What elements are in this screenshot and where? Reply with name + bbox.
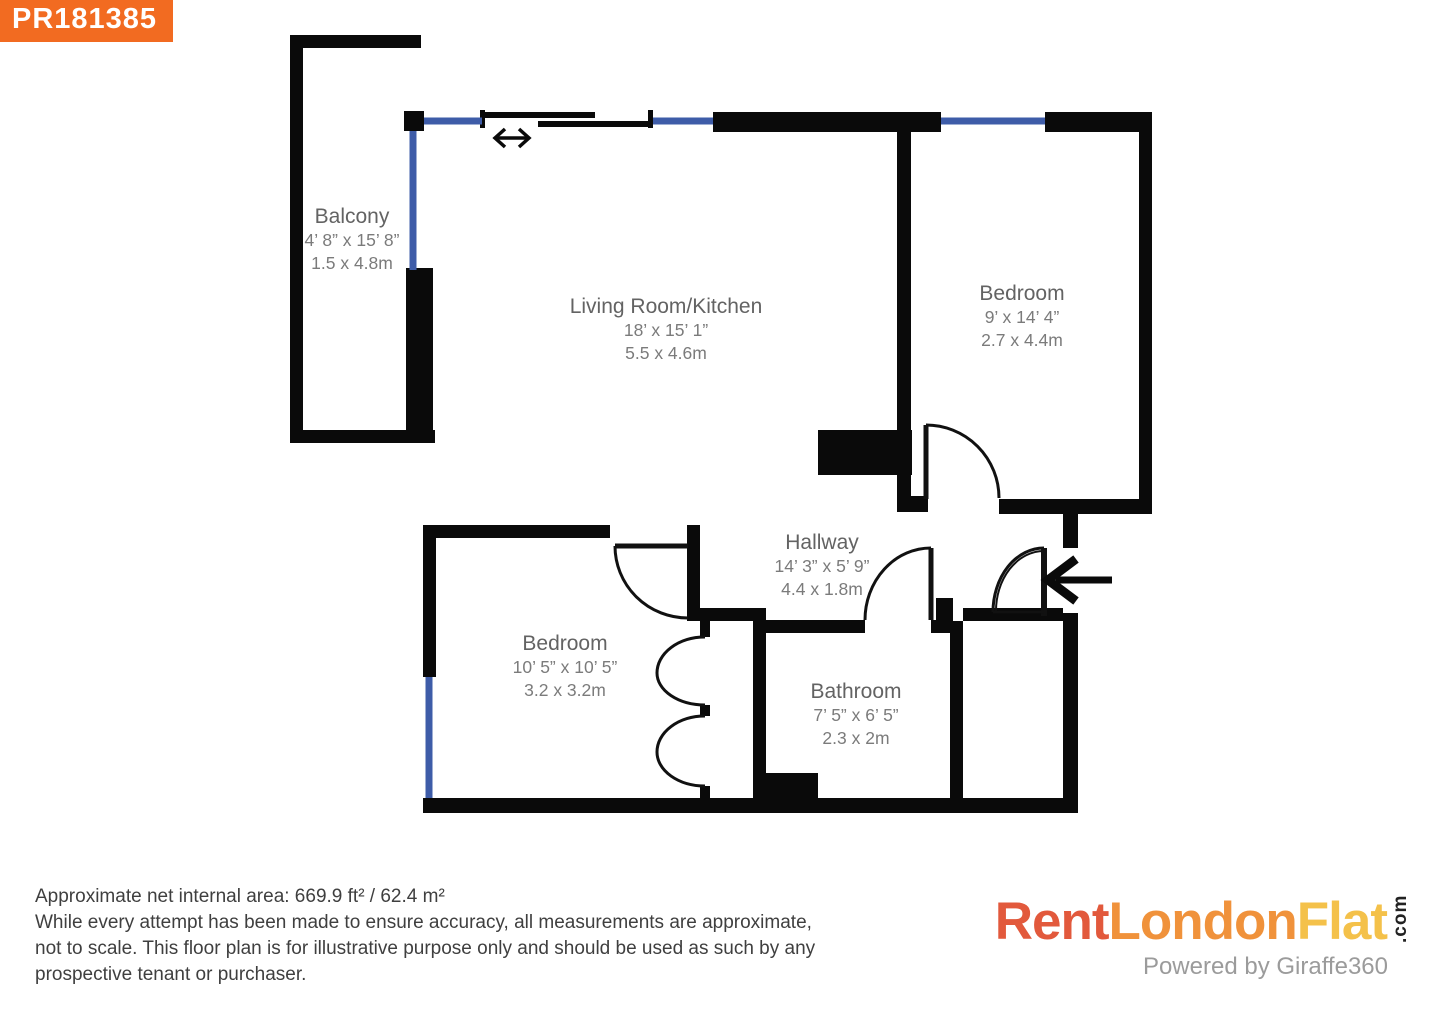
room-label-bathroom: Bathroom 7’ 5” x 6’ 5” 2.3 x 2m: [810, 679, 901, 750]
room-name: Balcony: [305, 204, 400, 229]
logo-word-london: London: [1109, 893, 1297, 951]
brand-logo-wordmark: Rent London Flat .com: [995, 893, 1412, 951]
room-dimensions-metric: 4.4 x 1.8m: [775, 578, 870, 601]
disclaimer-line: not to scale. This floor plan is for ill…: [35, 936, 815, 962]
room-name: Living Room/Kitchen: [570, 294, 763, 319]
entry-arrow-icon: [1048, 559, 1112, 601]
powered-by-text: Powered by Giraffe360: [995, 953, 1412, 981]
disclaimer-text: Approximate net internal area: 669.9 ft²…: [35, 884, 815, 988]
sliding-door-arrow-icon: [495, 129, 529, 147]
room-dimensions-metric: 5.5 x 4.6m: [570, 342, 763, 365]
room-dimensions-imperial: 10’ 5” x 10’ 5”: [513, 656, 618, 679]
room-name: Bedroom: [979, 281, 1064, 306]
room-label-living-room: Living Room/Kitchen 18’ x 15’ 1” 5.5 x 4…: [570, 294, 763, 365]
room-name: Bedroom: [513, 631, 618, 656]
floor-plan-drawing: [0, 0, 1440, 1018]
room-dimensions-metric: 3.2 x 3.2m: [513, 679, 618, 702]
room-dimensions-imperial: 4’ 8” x 15’ 8”: [305, 229, 400, 252]
room-dimensions-metric: 1.5 x 4.8m: [305, 252, 400, 275]
room-dimensions-imperial: 9’ x 14’ 4”: [979, 306, 1064, 329]
room-label-balcony: Balcony 4’ 8” x 15’ 8” 1.5 x 4.8m: [305, 204, 400, 275]
room-dimensions-metric: 2.7 x 4.4m: [979, 329, 1064, 352]
room-dimensions-metric: 2.3 x 2m: [810, 727, 901, 750]
room-name: Hallway: [775, 530, 870, 555]
logo-tld: .com: [1390, 895, 1412, 951]
disclaimer-line: prospective tenant or purchaser.: [35, 962, 815, 988]
net-internal-area: Approximate net internal area: 669.9 ft²…: [35, 884, 815, 910]
room-dimensions-imperial: 14’ 3” x 5’ 9”: [775, 555, 870, 578]
room-name: Bathroom: [810, 679, 901, 704]
logo-word-rent: Rent: [995, 893, 1109, 951]
room-dimensions-imperial: 7’ 5” x 6’ 5”: [810, 704, 901, 727]
brand-logo: Rent London Flat .com Powered by Giraffe…: [995, 893, 1412, 981]
room-dimensions-imperial: 18’ x 15’ 1”: [570, 319, 763, 342]
logo-word-flat: Flat: [1297, 893, 1387, 951]
disclaimer-line: While every attempt has been made to ens…: [35, 910, 815, 936]
walls-group: [290, 35, 1152, 813]
room-label-hallway: Hallway 14’ 3” x 5’ 9” 4.4 x 1.8m: [775, 530, 870, 601]
room-label-bedroom-2: Bedroom 10’ 5” x 10’ 5” 3.2 x 3.2m: [513, 631, 618, 702]
room-label-bedroom-1: Bedroom 9’ x 14’ 4” 2.7 x 4.4m: [979, 281, 1064, 352]
floor-plan-page: PR181385: [0, 0, 1440, 1018]
